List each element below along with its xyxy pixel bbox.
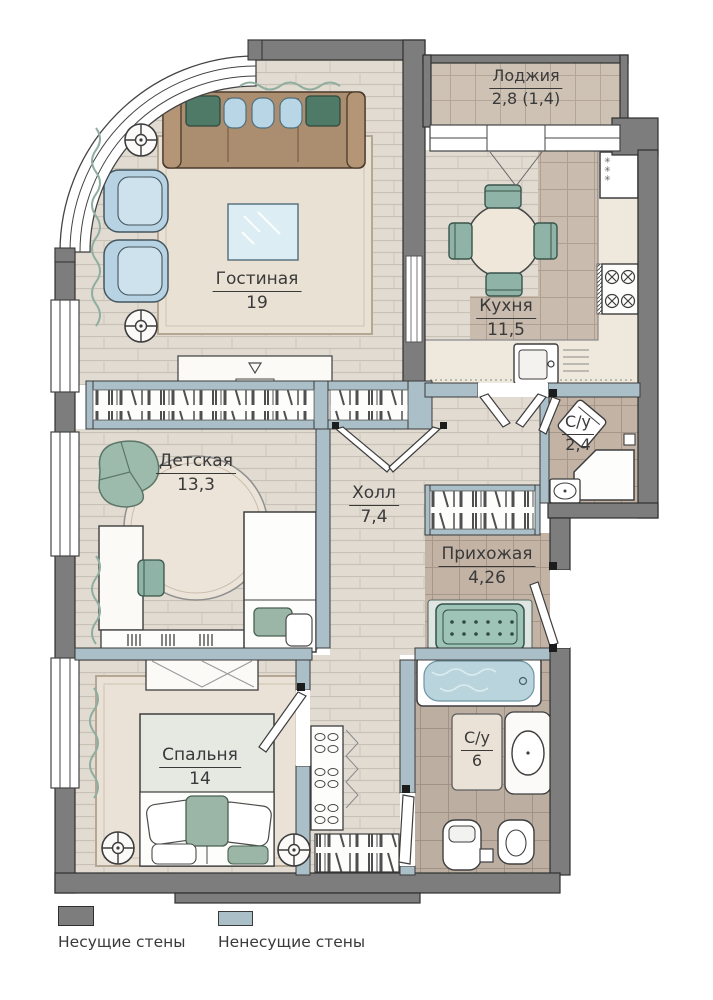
room-label-children: Детская 13,3 [156,450,236,496]
floor-plan-page: Лоджия 2,8 (1,4) Гостиная 19 Кухня 11,5 … [0,0,713,1000]
room-label-bath-small: С/у 2,4 [562,412,594,456]
room-label-hall: Холл 7,4 [349,482,399,528]
legend-swatch-partition [218,911,253,926]
room-label-loggia: Лоджия 2,8 (1,4) [489,66,562,110]
room-label-kitchen: Кухня 11,5 [476,295,536,341]
room-label-living: Гостиная 19 [213,268,302,314]
room-label-bath-main: С/у 6 [461,728,493,772]
entry-furniture [428,600,532,654]
legend-load-bearing: Несущие стены [58,906,185,951]
room-label-bedroom: Спальня 14 [159,744,241,790]
legend-partition: Ненесущие стены [218,911,365,951]
legend-swatch-load-bearing [58,906,94,926]
legend-label-load-bearing: Несущие стены [58,933,185,951]
freezer-stars-icon: ✳ ✳ ✳ [604,156,611,184]
room-label-entry: Прихожая 4,26 [438,543,535,589]
legend-label-partition: Ненесущие стены [218,933,365,951]
